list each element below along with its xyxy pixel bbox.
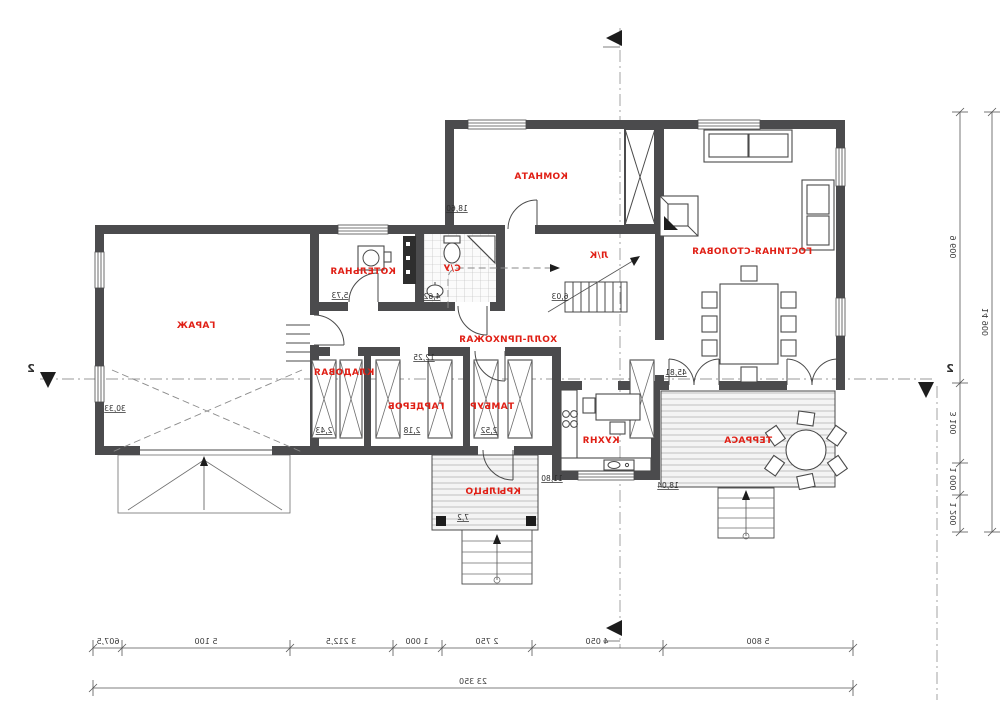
- door-garage: [314, 315, 344, 345]
- area-wc: 4,62: [423, 292, 440, 301]
- dim-r-total: 14 900: [981, 308, 990, 336]
- door-boiler: [349, 273, 378, 302]
- section-label-left: 2: [27, 362, 35, 375]
- room-label-storage: КЛАДОВАЯ: [314, 368, 375, 378]
- room-label-boiler: КОТЕЛЬНАЯ: [330, 267, 396, 277]
- floor-plan-canvas: 2 2: [0, 0, 1000, 706]
- area-hall: 12,25: [413, 353, 435, 362]
- door-bathroom: [458, 306, 487, 335]
- area-wardrobe: 2,18: [403, 426, 420, 435]
- area-stair: 6,03: [551, 292, 568, 301]
- area-porch: 7,2: [457, 513, 469, 522]
- dim-b-2: 3 212,5: [326, 637, 357, 646]
- dim-r-1: 3 100: [949, 412, 958, 435]
- dim-b-6: 5 800: [747, 637, 770, 646]
- area-boiler: 5,73: [331, 291, 348, 300]
- porch-deck: [432, 455, 538, 584]
- area-tambour: 2,52: [480, 426, 497, 435]
- dining-table-icon: [702, 266, 796, 382]
- room-label-stair: Л/К: [589, 251, 608, 261]
- garage-steps: [112, 325, 310, 452]
- room-label-living: ГОСТИНАЯ-СТОЛОВАЯ: [692, 247, 812, 257]
- area-storage: 2,43: [315, 426, 332, 435]
- window-kitchen: [578, 471, 634, 480]
- window-garage-upper: [95, 252, 104, 288]
- room-label-kitchen: КУХНЯ: [582, 436, 619, 446]
- door-bedroom: [508, 200, 537, 229]
- dim-r-3: 1 200: [949, 503, 958, 526]
- vent-shaft: [625, 129, 655, 225]
- dim-b-1: 5 100: [195, 637, 218, 646]
- room-label-tambour: ТАМБУР: [470, 402, 514, 412]
- dim-r-2: 1 000: [949, 468, 958, 491]
- dim-b-5: 4 050: [586, 637, 609, 646]
- section-label-right: 2: [946, 362, 954, 375]
- sink-kitchen-icon: [604, 460, 634, 470]
- dimension-bottom: 607,5 5 100 3 212,5 1 000 2 750 4 050 5 …: [89, 637, 857, 696]
- window-bedroom: [468, 120, 526, 129]
- area-garage: 30,33: [104, 404, 126, 413]
- window-living-right-2: [836, 298, 845, 336]
- room-label-porch: КРЫЛЬЦО: [465, 487, 521, 497]
- floor-plan-svg: 2 2: [0, 0, 1000, 706]
- garage-canopy: [118, 455, 290, 513]
- fireplace-icon: [660, 196, 698, 236]
- armchair-icon: [802, 180, 834, 250]
- area-living: 45,81: [665, 368, 687, 377]
- room-label-wardrobe: ГАРДЕРОБ: [388, 402, 445, 412]
- dim-r-0: 9 600: [949, 236, 958, 259]
- window-living-top: [698, 120, 760, 129]
- toilet-icon: [444, 236, 460, 263]
- area-terrace: 18,04: [657, 481, 679, 490]
- door-terrace-right: [787, 359, 837, 385]
- dim-b-0: 607,5: [97, 637, 120, 646]
- dim-b-4: 2 750: [476, 637, 499, 646]
- area-bedroom: 18,60: [446, 204, 468, 213]
- dim-b-total: 23 350: [459, 677, 487, 686]
- dim-b-3: 1 000: [406, 637, 429, 646]
- window-living-right-1: [836, 148, 845, 186]
- sofa-icon: [704, 130, 792, 162]
- dimension-right: 9 600 3 100 1 000 1 200 14 900: [949, 108, 1000, 536]
- room-label-wc: С/У: [443, 264, 461, 274]
- window-boiler: [338, 225, 388, 234]
- room-label-terrace: ТЕРРАСА: [724, 436, 772, 446]
- room-label-bedroom: КОМНАТА: [514, 172, 568, 182]
- room-label-garage: ГАРАЖ: [177, 321, 216, 331]
- room-label-hall: ХОЛЛ-ПРИХОЖАЯ: [459, 335, 557, 345]
- area-kitchen: 11,80: [541, 474, 563, 483]
- window-garage-lower: [95, 366, 104, 402]
